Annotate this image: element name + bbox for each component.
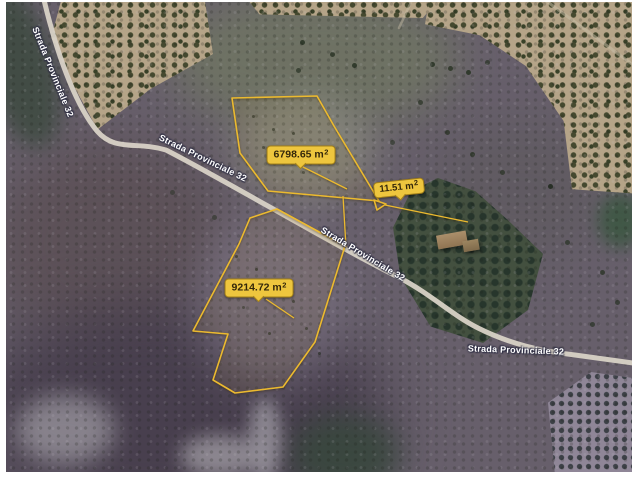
area-exponent: 2 — [324, 147, 328, 156]
area-exponent: 2 — [413, 178, 418, 187]
satellite-scene: Strada Provinciale 32 Strada Provinciale… — [6, 2, 632, 472]
measure-overlay — [6, 2, 632, 472]
road-track-northeast — [545, 2, 632, 70]
area-value: 11.51 m — [379, 180, 414, 195]
map-canvas[interactable]: Strada Provinciale 32 Strada Provinciale… — [6, 2, 632, 472]
measured-sliver-outline[interactable] — [374, 200, 386, 210]
sliver-leader-east — [385, 205, 468, 222]
area-badge-south[interactable]: 9214.72 m2 — [225, 279, 294, 298]
area-badge-north[interactable]: 6798.65 m2 — [267, 146, 336, 165]
area-value: 6798.65 m — [274, 149, 324, 161]
area-value: 9214.72 m — [232, 282, 282, 294]
road-track-top — [399, 2, 412, 28]
area-exponent: 2 — [282, 280, 286, 289]
